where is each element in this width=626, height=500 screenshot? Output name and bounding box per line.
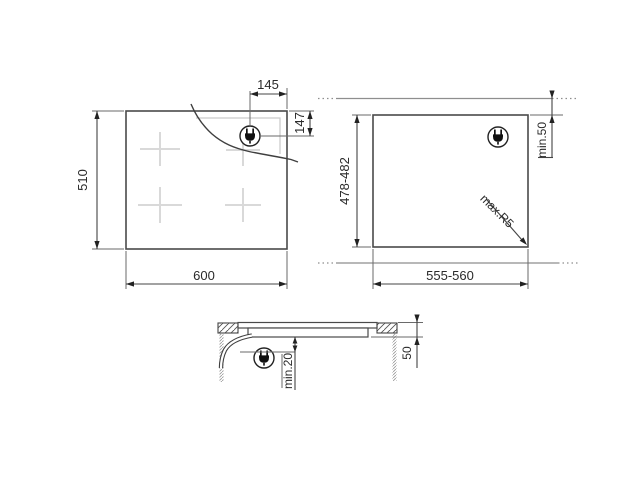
dim-plug-offset-right: 145 — [248, 78, 288, 92]
drawing-lines — [0, 0, 626, 500]
power-plug-icon — [254, 348, 274, 368]
hob-outline — [126, 111, 287, 249]
dim-cutout-width: 555-560 — [418, 269, 482, 283]
dim-hob-width: 600 — [184, 269, 224, 283]
installation-drawing: 145 147 510 600 478-482 555-560 min.50 m… — [0, 0, 626, 500]
hob-glass-section — [238, 323, 377, 329]
dim-hob-height: 510 — [76, 160, 90, 200]
dim-cutout-height: 478-482 — [338, 151, 352, 211]
section-view — [218, 315, 423, 391]
worktop-section-right — [377, 323, 397, 333]
hob-top-view — [92, 88, 314, 289]
dim-clearance-below: min.20 — [281, 341, 295, 401]
power-plug-icon — [240, 126, 260, 146]
cabinet-wall-right — [393, 333, 397, 381]
power-plug-icon — [488, 127, 508, 147]
dim-plug-offset-top: 147 — [293, 103, 307, 143]
hob-body-section — [248, 328, 368, 337]
dim-recess-depth: 50 — [400, 333, 414, 373]
worktop-section-left — [218, 323, 238, 333]
dim-rear-clearance: min.50 — [535, 110, 549, 170]
